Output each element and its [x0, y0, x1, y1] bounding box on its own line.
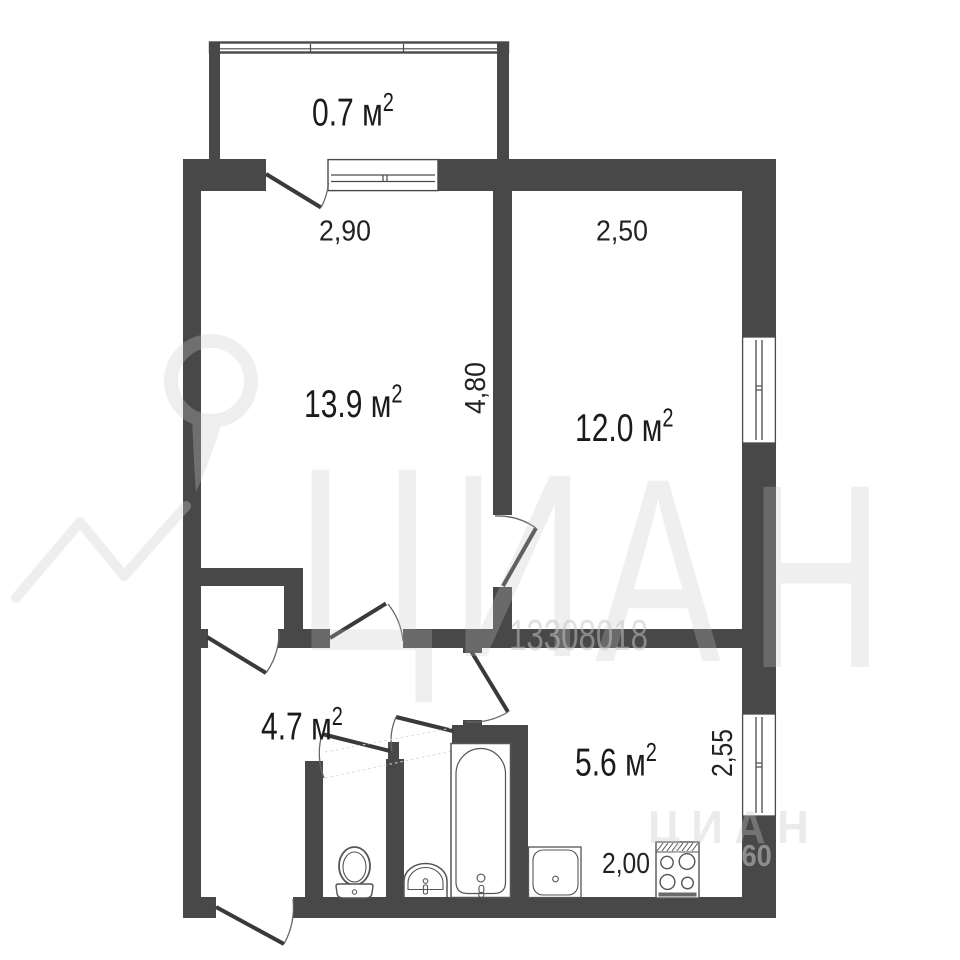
svg-text:2,90: 2,90 [319, 214, 371, 246]
svg-text:Н: Н [748, 431, 884, 724]
svg-text:И: И [450, 420, 586, 713]
svg-text:2,00: 2,00 [602, 847, 650, 879]
svg-text:5.6 м2: 5.6 м2 [575, 737, 657, 784]
svg-text:Ц: Ц [296, 414, 436, 707]
svg-text:ЦИАН: ЦИАН [648, 801, 820, 853]
svg-text:2,55: 2,55 [706, 729, 738, 777]
svg-text:0.7 м2: 0.7 м2 [312, 87, 394, 134]
svg-text:60: 60 [742, 839, 772, 873]
svg-text:4.7 м2: 4.7 м2 [261, 701, 343, 748]
svg-text:2,50: 2,50 [596, 214, 648, 246]
svg-text:А: А [595, 425, 721, 718]
svg-text:13308018: 13308018 [509, 611, 648, 661]
svg-text:4,80: 4,80 [459, 362, 491, 414]
